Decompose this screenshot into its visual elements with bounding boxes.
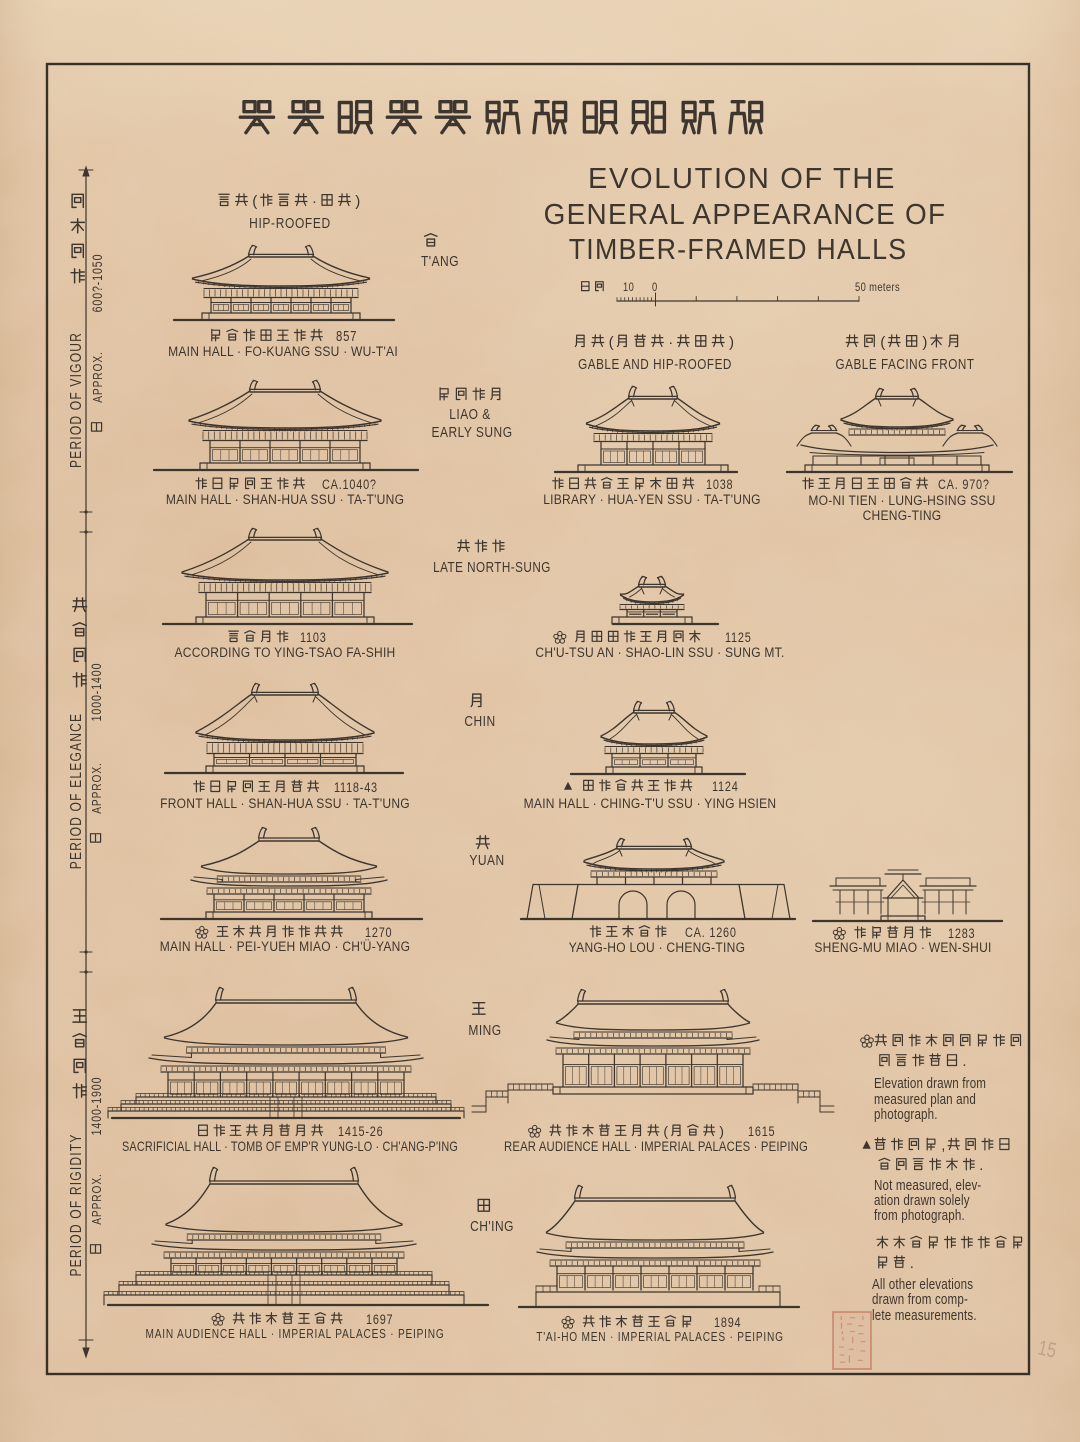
svg-text:drawn from comp-: drawn from comp-: [872, 1291, 968, 1308]
svg-text:MO-NI TIEN · LUNG-HSING SSU: MO-NI TIEN · LUNG-HSING SSU: [808, 492, 995, 508]
svg-text:SACRIFICIAL HALL · TOMB OF EMP: SACRIFICIAL HALL · TOMB OF EMP'R YUNG-LO…: [122, 1139, 458, 1154]
svg-text:YANG-HO LOU · CHENG-TING: YANG-HO LOU · CHENG-TING: [569, 939, 745, 955]
svg-text:MING: MING: [468, 1022, 501, 1039]
svg-text:CA.1040?: CA.1040?: [322, 477, 377, 493]
svg-text:T'ANG: T'ANG: [421, 253, 459, 270]
svg-text:1038: 1038: [706, 477, 733, 493]
svg-text:lete measurements.: lete measurements.: [872, 1307, 977, 1324]
svg-text:1124: 1124: [712, 779, 739, 795]
svg-text:1103: 1103: [300, 630, 327, 646]
svg-text:APPROX.: APPROX.: [90, 762, 104, 814]
svg-text:LATE NORTH-SUNG: LATE NORTH-SUNG: [433, 559, 551, 576]
svg-text:TIMBER-FRAMED HALLS: TIMBER-FRAMED HALLS: [569, 233, 908, 265]
svg-text:): ): [729, 334, 735, 351]
svg-text:APPROX.: APPROX.: [90, 1173, 104, 1225]
svg-text:HIP-ROOFED: HIP-ROOFED: [249, 215, 331, 232]
svg-text:): ): [922, 334, 928, 351]
svg-text:REAR AUDIENCE HALL · IMPERIAL: REAR AUDIENCE HALL · IMPERIAL PALACES · …: [504, 1139, 808, 1154]
svg-text:GABLE FACING FRONT: GABLE FACING FRONT: [835, 356, 974, 373]
svg-text:YUAN: YUAN: [469, 852, 504, 869]
svg-text:SHENG-MU MIAO · WEN-SHUI: SHENG-MU MIAO · WEN-SHUI: [814, 939, 991, 955]
svg-text:1125: 1125: [725, 630, 752, 646]
svg-text:CA. 970?: CA. 970?: [938, 477, 990, 493]
svg-text:1400-1900: 1400-1900: [89, 1077, 105, 1136]
svg-text:PERIOD OF RIGIDITY: PERIOD OF RIGIDITY: [67, 1133, 85, 1276]
svg-text:1000-1400: 1000-1400: [89, 663, 105, 722]
svg-text:1615: 1615: [748, 1124, 775, 1140]
svg-text:): ): [355, 193, 361, 210]
svg-text:(: (: [663, 1124, 669, 1140]
svg-text:CH'U-TSU AN · SHAO-LIN SSU · S: CH'U-TSU AN · SHAO-LIN SSU · SUNG MT.: [535, 644, 784, 660]
svg-text:50 meters: 50 meters: [855, 281, 900, 294]
svg-text:from photograph.: from photograph.: [874, 1207, 965, 1224]
svg-text:ACCORDING TO YING-TSAO FA-SHIH: ACCORDING TO YING-TSAO FA-SHIH: [175, 644, 396, 660]
svg-text:(: (: [880, 334, 886, 351]
svg-text:·: ·: [668, 334, 674, 351]
svg-text:GENERAL APPEARANCE OF: GENERAL APPEARANCE OF: [544, 198, 947, 230]
svg-text:(: (: [609, 334, 615, 351]
svg-text:1118-43: 1118-43: [334, 780, 378, 796]
svg-text:MAIN HALL · PEI-YUEH MIAO · C: MAIN HALL · PEI-YUEH MIAO · CH'Ü-YANG: [160, 938, 410, 954]
svg-text:1894: 1894: [714, 1315, 741, 1331]
svg-text:857: 857: [336, 328, 357, 345]
svg-text:PERIOD OF ELEGANCE: PERIOD OF ELEGANCE: [67, 713, 85, 870]
svg-text:.: .: [979, 1158, 984, 1174]
svg-text:(: (: [252, 193, 258, 210]
svg-text:0: 0: [652, 281, 658, 294]
svg-text:MAIN HALL · CHING-T'U SSU · YI: MAIN HALL · CHING-T'U SSU · YING HSIEN: [524, 795, 777, 811]
svg-text:LIAO &: LIAO &: [449, 406, 491, 423]
svg-text:1415-26: 1415-26: [338, 1124, 384, 1140]
svg-text:MAIN AUDIENCE HALL · IMPERIAL: MAIN AUDIENCE HALL · IMPERIAL PALACES · …: [145, 1327, 444, 1341]
svg-text:FRONT HALL · SHAN-HUA SSU · TA: FRONT HALL · SHAN-HUA SSU · TA-T'UNG: [160, 795, 410, 811]
svg-text:PERIOD OF VIGOUR: PERIOD OF VIGOUR: [67, 332, 85, 468]
svg-text:·: ·: [312, 193, 318, 210]
svg-text:photograph.: photograph.: [874, 1106, 938, 1123]
svg-text:EVOLUTION OF THE: EVOLUTION OF THE: [588, 163, 896, 195]
svg-text:EARLY SUNG: EARLY SUNG: [431, 424, 512, 441]
svg-text:,: ,: [941, 1138, 946, 1154]
svg-text:Elevation drawn from: Elevation drawn from: [874, 1075, 986, 1092]
svg-text:.: .: [962, 1054, 967, 1070]
svg-text:.: .: [910, 1256, 915, 1272]
svg-text:GABLE AND HIP-ROOFED: GABLE AND HIP-ROOFED: [578, 356, 732, 373]
svg-text:MAIN HALL · SHAN-HUA SSU · TA-: MAIN HALL · SHAN-HUA SSU · TA-T'UNG: [166, 491, 404, 507]
svg-text:): ): [719, 1124, 725, 1140]
svg-text:CH'ING: CH'ING: [470, 1218, 514, 1235]
svg-text:CHENG-TING: CHENG-TING: [863, 507, 942, 523]
svg-text:1697: 1697: [366, 1312, 393, 1328]
svg-text:10: 10: [623, 281, 634, 294]
svg-text:MAIN HALL · FO-KUANG SSU · WU-: MAIN HALL · FO-KUANG SSU · WU-T'AI: [168, 343, 398, 359]
svg-text:CA. 1260: CA. 1260: [685, 925, 737, 941]
svg-text:LIBRARY · HUA-YEN SSU · TA-T'U: LIBRARY · HUA-YEN SSU · TA-T'UNG: [543, 491, 761, 507]
svg-text:APPROX.: APPROX.: [91, 351, 105, 403]
svg-text:T'AI-HO MEN · IMPERIAL PALACES: T'AI-HO MEN · IMPERIAL PALACES · PEIPING: [536, 1330, 783, 1344]
svg-text:CHIN: CHIN: [464, 713, 495, 730]
svg-text:600?-1050: 600?-1050: [90, 254, 106, 313]
